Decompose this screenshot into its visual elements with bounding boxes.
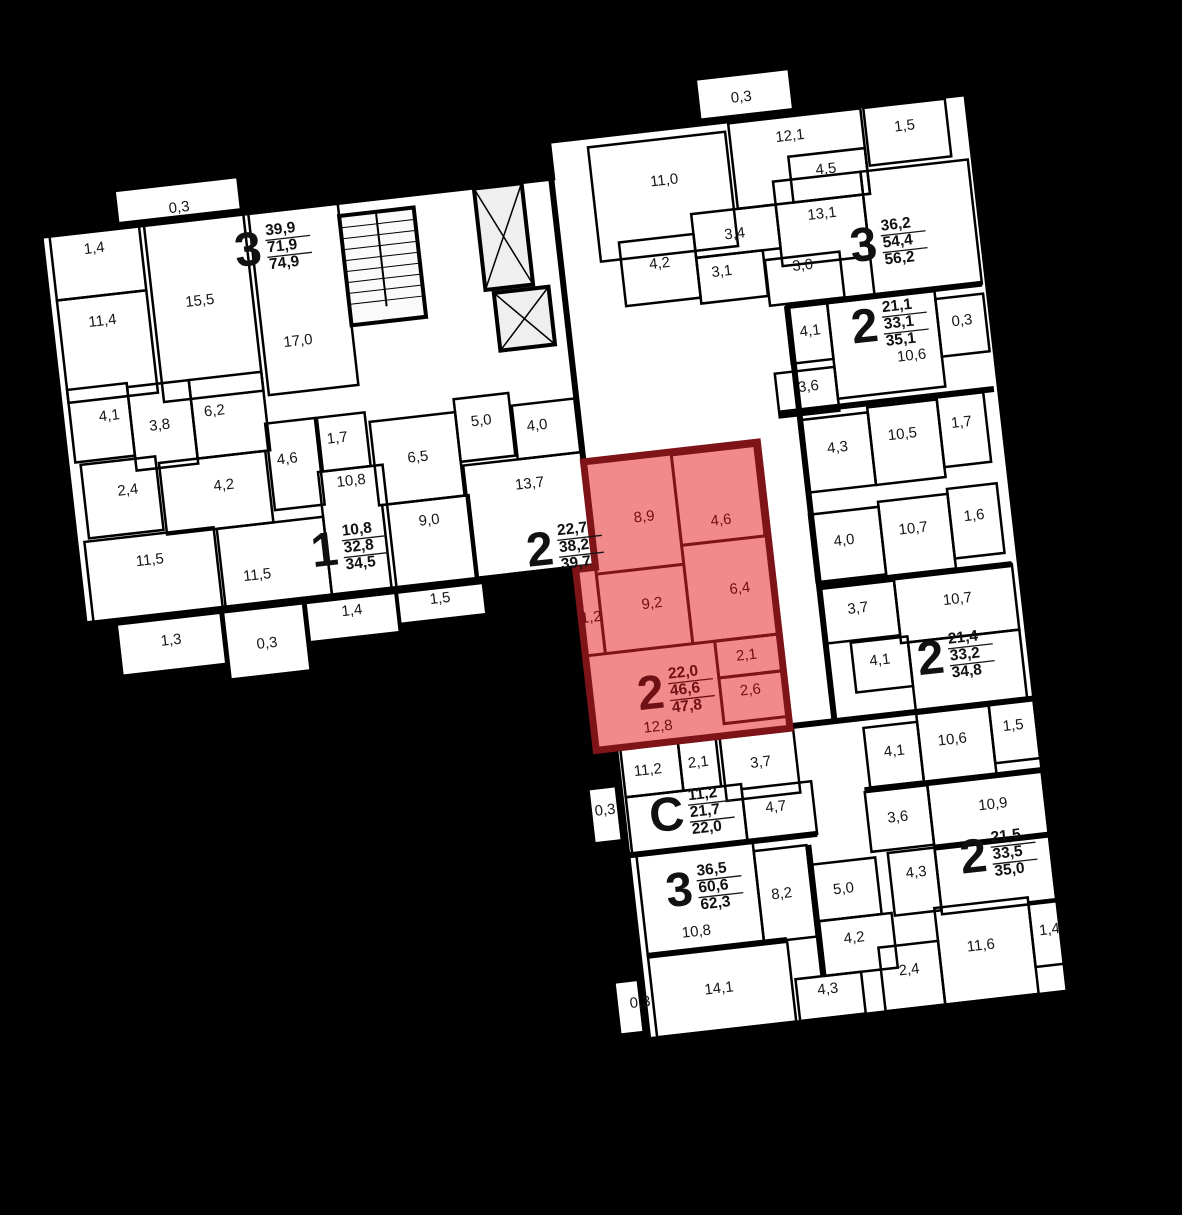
- room-area-label: 0,3: [256, 634, 279, 653]
- room-area-label: 6,4: [729, 579, 752, 598]
- room-area-label: 1,4: [1038, 920, 1061, 939]
- room-area-label: 1,3: [160, 631, 183, 650]
- room-area-label: 0,3: [730, 88, 753, 107]
- room-area-label: 4,0: [526, 416, 549, 435]
- room-area-label: 12,1: [774, 126, 805, 146]
- room-area-label: 1,7: [950, 413, 973, 432]
- room-area-label: 6,5: [407, 448, 430, 467]
- building: 0,31,411,415,517,04,13,86,22,44,211,511,…: [30, 49, 1072, 1099]
- room-area-label: 4,6: [710, 511, 733, 530]
- room-area-label: 14,1: [704, 978, 735, 998]
- room-area-label: 10,8: [681, 922, 712, 942]
- room-area-label: 11,4: [88, 311, 118, 331]
- room-area-label: 4,1: [799, 321, 822, 340]
- room-area-label: 3,6: [886, 807, 909, 826]
- room-area-label: 5,0: [832, 879, 855, 898]
- room-area-label: 4,5: [815, 159, 838, 178]
- room-area-label: 10,6: [896, 345, 927, 365]
- room-area-label: 3,1: [711, 262, 734, 281]
- room-area-label: 8,9: [633, 507, 656, 526]
- room-area-label: 4,0: [833, 531, 856, 550]
- room-area-label: 11,5: [135, 550, 165, 570]
- room-area-label: 3,0: [791, 256, 814, 275]
- room-area-label: 3,8: [148, 416, 171, 435]
- room-area-label: 11,0: [649, 170, 679, 190]
- room-area-label: 8,2: [770, 884, 793, 903]
- room-area-label: 9,0: [418, 511, 441, 530]
- room-area-label: 1,4: [83, 239, 106, 258]
- room-area-label: 1,7: [326, 429, 349, 448]
- room-area-label: 4,2: [213, 476, 236, 495]
- room-area-label: 4,6: [276, 449, 299, 468]
- room-area-label: 10,8: [336, 471, 367, 491]
- room-area-label: 4,2: [843, 928, 866, 947]
- room-area-label: 10,5: [887, 424, 918, 444]
- room-area-label: 10,7: [942, 589, 973, 609]
- room-area-label: 1,4: [341, 601, 364, 620]
- room-area-label: 11,5: [242, 565, 272, 585]
- room-area-label: 1,5: [429, 589, 452, 608]
- room-area-label: 10,9: [977, 794, 1008, 814]
- room-area-label: 4,1: [98, 406, 121, 425]
- room-area-label: 1,5: [893, 116, 916, 135]
- room-area-label: 15,5: [184, 291, 215, 311]
- building-outline: [35, 92, 1070, 1099]
- room-area-label: 17,0: [283, 331, 314, 351]
- room-area-label: 4,1: [869, 651, 892, 670]
- room-area-label: 3,4: [723, 224, 746, 243]
- floor-plan: 0,31,411,415,517,04,13,86,22,44,211,511,…: [0, 0, 1182, 1215]
- room-area-label: 3,6: [797, 377, 820, 396]
- room-area-label: 11,6: [966, 936, 996, 956]
- room-area-label: 0,3: [594, 801, 617, 820]
- room-area-label: 4,3: [816, 980, 839, 999]
- room-area-label: 1,5: [1002, 716, 1025, 735]
- room-area-label: 2,1: [687, 753, 710, 772]
- room-area-label: 4,7: [764, 797, 787, 816]
- room-area-label: 5,0: [470, 411, 493, 430]
- room-area-label: 0,3: [629, 993, 652, 1012]
- room-area-label: 10,7: [898, 518, 929, 538]
- apartment-rooms-count: С: [647, 787, 687, 844]
- room-area-label: 1,2: [580, 608, 603, 627]
- room-area-label: 3,7: [749, 753, 772, 772]
- floor-plan-canvas: 0,31,411,415,517,04,13,86,22,44,211,511,…: [0, 0, 1182, 1215]
- room-area-label: 6,2: [203, 401, 226, 420]
- room-area-label: 3,7: [847, 599, 870, 618]
- room-area-label: 4,1: [883, 741, 906, 760]
- room-area-label: 0,3: [168, 198, 191, 217]
- room-area-label: 13,1: [807, 204, 838, 224]
- room-area-label: 13,7: [514, 474, 545, 494]
- room-area-label: 0,3: [951, 311, 974, 330]
- room-area-label: 11,2: [633, 760, 663, 780]
- room-area-label: 2,6: [739, 680, 762, 699]
- room-area-label: 2,4: [898, 960, 921, 979]
- room-area-label: 4,3: [905, 863, 928, 882]
- room-area-label: 2,1: [735, 646, 758, 665]
- stairs-icon: [339, 208, 426, 326]
- room-area-label: 1,6: [963, 506, 986, 525]
- room-area-label: 4,3: [826, 438, 849, 457]
- room-area-label: 10,6: [937, 729, 968, 749]
- room-area-label: 2,4: [116, 481, 139, 500]
- room-area-label: 9,2: [641, 594, 664, 613]
- room-area-label: 4,2: [648, 254, 671, 273]
